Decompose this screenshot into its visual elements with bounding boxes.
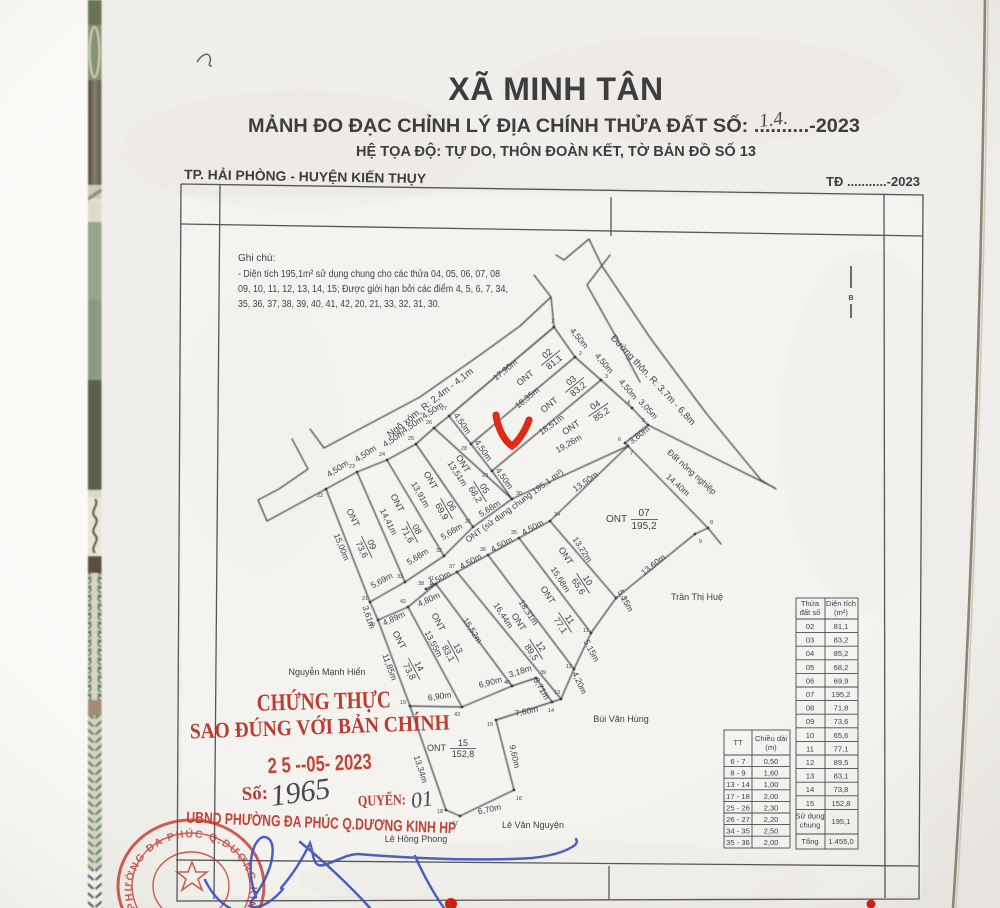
svg-text:05: 05 xyxy=(806,663,814,672)
svg-text:07: 07 xyxy=(638,508,650,519)
svg-text:1.455,0: 1.455,0 xyxy=(828,837,853,846)
svg-text:Ghi chú:: Ghi chú: xyxy=(238,253,275,264)
svg-text:Chiều dài: Chiều dài xyxy=(755,734,787,743)
svg-text:11: 11 xyxy=(583,628,589,634)
svg-text:XÃ MINH TÂN: XÃ MINH TÂN xyxy=(448,71,663,107)
svg-text:25 - 26: 25 - 26 xyxy=(726,803,750,812)
svg-text:89,5: 89,5 xyxy=(834,758,849,767)
svg-text:195,2: 195,2 xyxy=(831,690,850,699)
svg-text:14: 14 xyxy=(548,708,554,714)
svg-text:4: 4 xyxy=(627,400,630,406)
svg-text:04: 04 xyxy=(806,649,814,658)
svg-text:Trần Thị Huệ: Trần Thị Huệ xyxy=(671,592,723,602)
svg-text:TT: TT xyxy=(733,738,743,747)
svg-text:85,2: 85,2 xyxy=(834,649,849,658)
svg-text:24: 24 xyxy=(379,452,385,458)
svg-text:195,2: 195,2 xyxy=(631,521,656,532)
svg-text:152,8: 152,8 xyxy=(831,799,850,808)
svg-text:29: 29 xyxy=(482,473,488,479)
svg-text:28: 28 xyxy=(461,446,467,452)
svg-text:83,2: 83,2 xyxy=(834,636,849,645)
svg-text:195,1: 195,1 xyxy=(831,817,850,826)
svg-text:13: 13 xyxy=(554,690,560,696)
svg-text:QUYỂN:: QUYỂN: xyxy=(358,790,407,810)
svg-text:6: 6 xyxy=(618,437,621,443)
svg-text:14: 14 xyxy=(806,785,814,794)
svg-text:Diện tích: Diện tích xyxy=(826,599,856,608)
svg-text:42: 42 xyxy=(400,599,406,605)
svg-text:10: 10 xyxy=(806,731,814,740)
svg-text:B: B xyxy=(848,295,853,302)
svg-text:đất số: đất số xyxy=(800,608,821,617)
svg-text:40: 40 xyxy=(504,680,510,686)
svg-text:2,00: 2,00 xyxy=(764,792,779,801)
svg-text:68,2: 68,2 xyxy=(834,663,849,672)
svg-text:19: 19 xyxy=(400,700,406,706)
svg-text:13: 13 xyxy=(806,772,814,781)
svg-text:26: 26 xyxy=(426,420,432,426)
svg-text:Sử dụng: Sử dụng xyxy=(795,811,824,820)
svg-text:- Diện tích 195,1m² sử dụng ch: - Diện tích 195,1m² sử dụng chung cho cá… xyxy=(238,268,500,280)
svg-text:2,30: 2,30 xyxy=(764,803,779,812)
svg-text:ONT: ONT xyxy=(427,743,447,753)
svg-text:HỆ TỌA ĐỘ: TỰ DO, THÔN ĐOÀN KẾ: HỆ TỌA ĐỘ: TỰ DO, THÔN ĐOÀN KẾT, TỜ BẢN … xyxy=(356,142,756,160)
svg-text:1.4.: 1.4. xyxy=(758,108,789,132)
svg-text:2,00: 2,00 xyxy=(764,838,779,847)
svg-text:Số:: Số: xyxy=(241,783,268,805)
svg-text:35: 35 xyxy=(511,530,517,536)
svg-text:2,50: 2,50 xyxy=(764,827,779,836)
svg-text:73,6: 73,6 xyxy=(834,717,849,726)
svg-text:34 - 35: 34 - 35 xyxy=(726,827,750,836)
svg-text:25: 25 xyxy=(408,436,414,442)
svg-text:71,8: 71,8 xyxy=(834,704,849,713)
svg-text:15: 15 xyxy=(487,722,493,728)
svg-text:22: 22 xyxy=(317,493,323,499)
svg-text:3: 3 xyxy=(605,374,608,380)
svg-text:35, 36, 37, 38, 39, 40, 41, 42: 35, 36, 37, 38, 39, 40, 41, 42, 20, 21, … xyxy=(238,299,440,310)
svg-text:8 - 9: 8 - 9 xyxy=(730,769,745,778)
svg-text:15: 15 xyxy=(806,799,814,808)
svg-text:152,8: 152,8 xyxy=(452,749,475,759)
svg-text:65,6: 65,6 xyxy=(834,731,849,740)
svg-text:1,00: 1,00 xyxy=(764,780,779,789)
svg-text:7: 7 xyxy=(630,451,633,457)
svg-text:12: 12 xyxy=(806,758,814,767)
svg-text:09: 09 xyxy=(806,717,814,726)
svg-text:12: 12 xyxy=(566,664,572,670)
svg-text:18: 18 xyxy=(437,809,443,815)
svg-text:07: 07 xyxy=(806,690,814,699)
svg-text:1,60: 1,60 xyxy=(764,769,779,778)
svg-text:01: 01 xyxy=(409,785,434,813)
svg-text:31: 31 xyxy=(465,519,471,525)
svg-text:ONT: ONT xyxy=(606,514,627,525)
svg-text:chung: chung xyxy=(800,820,821,829)
svg-text:73,8: 73,8 xyxy=(834,785,849,794)
svg-text:9: 9 xyxy=(699,539,702,545)
svg-text:1: 1 xyxy=(551,319,554,325)
svg-text:Thửa: Thửa xyxy=(801,599,820,608)
svg-text:02: 02 xyxy=(806,622,814,631)
svg-text:Bùi Văn Hùng: Bùi Văn Hùng xyxy=(593,714,649,724)
svg-text:23: 23 xyxy=(349,464,355,470)
svg-text:21: 21 xyxy=(362,596,368,602)
svg-text:13 - 14: 13 - 14 xyxy=(726,780,750,789)
svg-text:17 - 18: 17 - 18 xyxy=(726,792,750,801)
svg-text:36: 36 xyxy=(480,547,486,553)
svg-text:Lê Văn Nguyện: Lê Văn Nguyện xyxy=(502,820,564,830)
svg-text:11: 11 xyxy=(806,744,814,753)
svg-text:16: 16 xyxy=(516,796,522,802)
svg-text:09, 10, 11, 12, 13, 14, 15; Đư: 09, 10, 11, 12, 13, 14, 15; Được giới hạ… xyxy=(238,283,508,295)
svg-text:43: 43 xyxy=(454,712,460,718)
svg-text:15: 15 xyxy=(458,738,468,748)
svg-text:0,50: 0,50 xyxy=(764,757,779,766)
svg-text:34: 34 xyxy=(554,512,560,518)
svg-text:03: 03 xyxy=(806,636,814,645)
svg-text:(m): (m) xyxy=(765,743,777,752)
svg-text:06: 06 xyxy=(806,676,814,685)
svg-text:39: 39 xyxy=(540,670,546,676)
svg-text:6 - 7: 6 - 7 xyxy=(730,757,745,766)
svg-text:Tổng: Tổng xyxy=(801,837,818,846)
svg-text:77,1: 77,1 xyxy=(834,744,849,753)
svg-text:81,1: 81,1 xyxy=(834,622,849,631)
svg-text:(m²): (m²) xyxy=(834,608,848,617)
svg-text:33: 33 xyxy=(397,574,403,580)
svg-text:2: 2 xyxy=(579,351,582,357)
svg-text:32: 32 xyxy=(436,548,442,554)
svg-text:2,20: 2,20 xyxy=(764,815,779,824)
svg-text:TĐ ...........-2023: TĐ ...........-2023 xyxy=(826,174,920,189)
svg-text:35 - 36: 35 - 36 xyxy=(726,838,750,847)
svg-text:08: 08 xyxy=(806,704,814,713)
svg-text:83,1: 83,1 xyxy=(834,772,849,781)
svg-text:69,9: 69,9 xyxy=(834,676,849,685)
svg-text:8: 8 xyxy=(710,520,713,526)
svg-text:26 - 27: 26 - 27 xyxy=(726,815,750,824)
svg-text:38: 38 xyxy=(418,581,424,587)
svg-text:37: 37 xyxy=(449,564,455,570)
svg-text:Nguyễn Mạnh Hiển: Nguyễn Mạnh Hiển xyxy=(288,667,365,677)
